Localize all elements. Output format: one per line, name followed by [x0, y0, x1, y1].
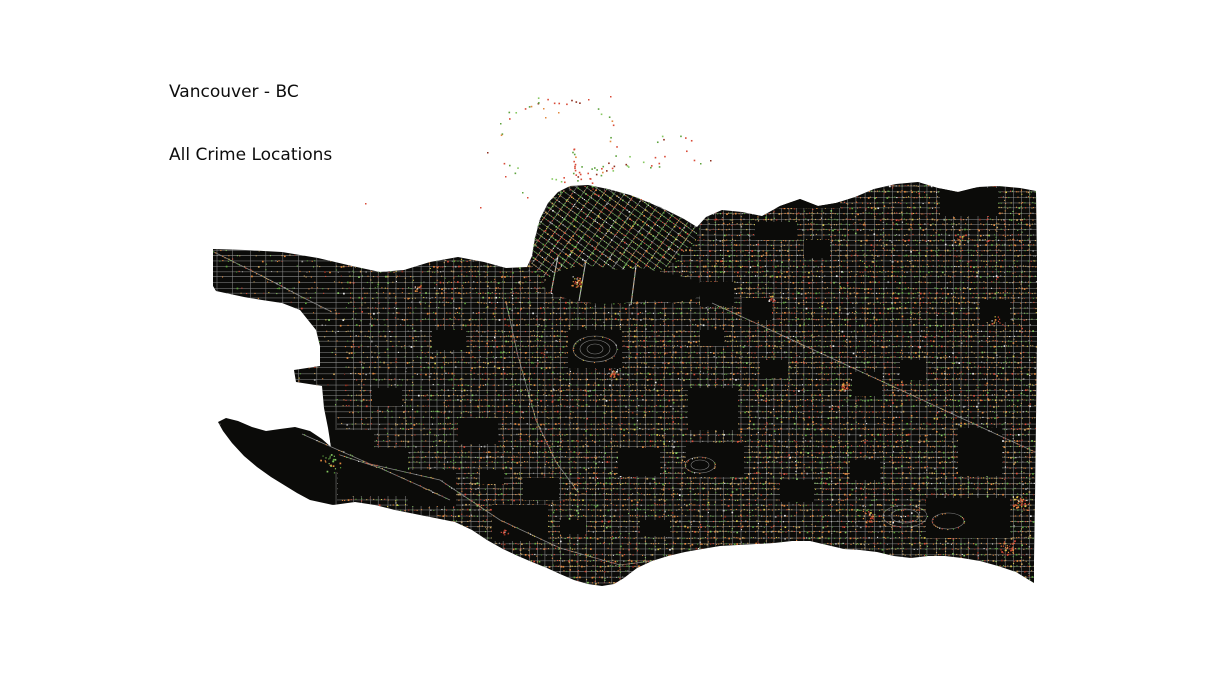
plot-title-line2: All Crime Locations — [169, 145, 332, 166]
plot-title: Vancouver - BC All Crime Locations — [169, 40, 332, 208]
figure: Vancouver - BC All Crime Locations — [0, 0, 1215, 684]
plot-title-line1: Vancouver - BC — [169, 82, 332, 103]
